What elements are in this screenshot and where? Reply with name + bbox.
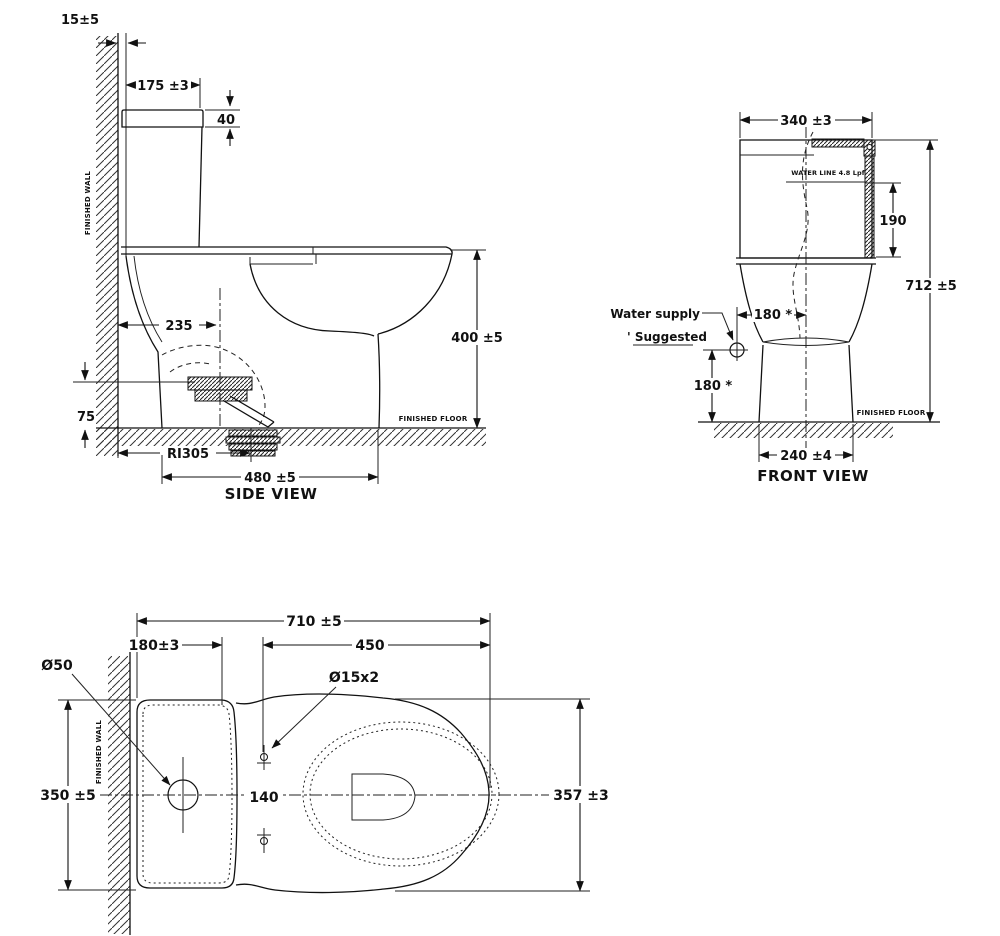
lid-section-hatch — [812, 139, 864, 147]
supply-hole-label: Ø50 — [41, 658, 73, 674]
finished-floor-label-side: FINISHED FLOOR — [399, 415, 468, 423]
pedestal-front-side — [378, 334, 380, 428]
side-view-title: SIDE VIEW — [225, 485, 318, 503]
dim-supply-offset: 180 * — [754, 308, 793, 323]
tank-front-side — [199, 127, 202, 247]
tank-plan-inner — [143, 705, 232, 883]
finished-floor-label-front: FINISHED FLOOR — [857, 409, 926, 417]
front-view: WATER LINE 4.8 Lpf 340 ±3 190 712 ±5 Wat… — [610, 112, 960, 485]
dim-seat-height: 400 ±5 — [451, 331, 503, 346]
dim-overall-width: 350 ±5 — [40, 788, 96, 804]
side-floor-hatch — [96, 429, 486, 446]
water-line-note: WATER LINE 4.8 Lpf — [791, 169, 865, 177]
dim-rough-in: RI305 — [167, 447, 209, 462]
tank-wall-section-hatch — [865, 156, 874, 258]
dim-outlet-from-wall: 235 — [165, 319, 192, 334]
trapway-inner-dashed — [170, 363, 210, 372]
dim-tank-width-front: 340 ±3 — [780, 114, 832, 129]
front-view-title: FRONT VIEW — [757, 467, 869, 485]
toilet-dimension-drawing: 15±5 175 ±3 40 — [0, 0, 1000, 936]
finished-wall-label-plan: FINISHED WALL — [95, 720, 103, 784]
dim-depth: 480 ±5 — [244, 471, 296, 486]
front-floor-hatch — [714, 423, 893, 438]
shell-back-outer — [126, 256, 162, 428]
dim-bowl-width: 357 ±3 — [553, 788, 609, 804]
dim-total-length: 710 ±5 — [286, 614, 342, 630]
seat-top-side — [121, 247, 452, 254]
bowl-left-front — [740, 264, 763, 342]
dim-total-height: 712 ±5 — [905, 279, 957, 294]
dim-base-width: 240 ±4 — [780, 449, 832, 464]
dim-lid-height: 40 — [217, 113, 235, 128]
dim-wall-gap: 15±5 — [61, 13, 99, 28]
side-view: 15±5 175 ±3 40 — [61, 13, 506, 503]
break-line — [793, 132, 813, 338]
dim-outlet-height: 75 — [77, 410, 95, 425]
outlet-plan — [352, 774, 415, 820]
seat-ring-inner — [310, 729, 492, 859]
bowl-inner-side — [250, 264, 374, 336]
water-supply-label: Water supply — [610, 307, 700, 321]
plan-view: FINISHED WALL 710 ±5 180±3 — [36, 613, 613, 935]
dim-water-depth: 190 — [879, 214, 906, 229]
side-wall-hatch — [96, 36, 118, 456]
finished-wall-label-side: FINISHED WALL — [84, 171, 92, 235]
technical-drawing-page: 15±5 175 ±3 40 — [0, 0, 1000, 936]
dim-bowl-length: 450 — [355, 638, 384, 654]
suggested-note: ' Suggested — [627, 330, 707, 344]
shell-back-inner — [134, 256, 162, 342]
dim-tank-depth-plan: 180±3 — [129, 638, 180, 654]
bowl-right-front — [849, 264, 872, 342]
tank-plan-outer — [137, 700, 237, 888]
dim-bolt-spacing: 140 — [249, 790, 278, 806]
bowl-outer-side — [378, 254, 452, 334]
tank-lid-side — [122, 110, 203, 127]
dim-tank-top-width: 175 ±3 — [137, 79, 189, 94]
bolt-holes-label: Ø15x2 — [329, 670, 379, 686]
outlet-flange-lower — [195, 390, 247, 401]
dim-supply-height: 180 * — [694, 379, 733, 394]
